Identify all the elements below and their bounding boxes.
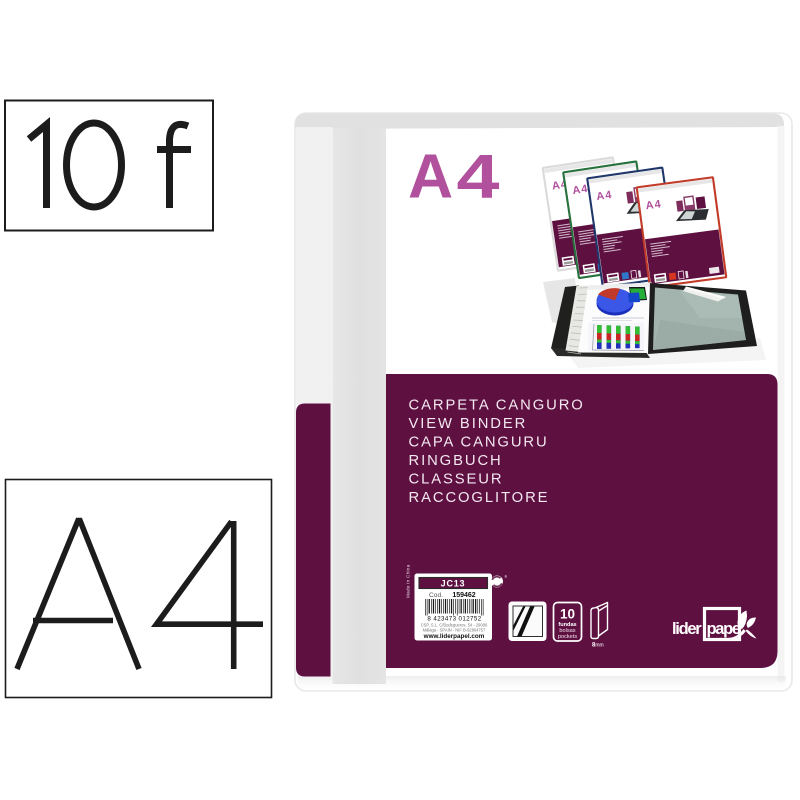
svg-text:®: ®	[505, 575, 508, 579]
svg-text:A4: A4	[596, 189, 614, 203]
svg-text:CAPA CANGURU: CAPA CANGURU	[409, 435, 549, 451]
svg-text:CARPETA CANGURO: CARPETA CANGURO	[409, 398, 585, 414]
svg-text:lider: lider	[672, 620, 702, 638]
svg-text:VIEW BINDER: VIEW BINDER	[409, 416, 528, 432]
svg-text:www.liderpapel.com: www.liderpapel.com	[423, 633, 485, 640]
svg-text:fundas: fundas	[558, 622, 576, 628]
svg-text:JC13: JC13	[441, 579, 466, 589]
svg-text:Made in China: Made in China	[406, 564, 411, 598]
svg-text:4: 4	[457, 142, 500, 212]
svg-text:pockets: pockets	[558, 634, 577, 640]
svg-text:10: 10	[560, 607, 575, 622]
svg-text:pape: pape	[707, 620, 741, 638]
svg-text:8mm: 8mm	[592, 643, 604, 649]
svg-text:A: A	[408, 142, 453, 212]
svg-text:159462: 159462	[452, 592, 475, 599]
svg-text:A4: A4	[572, 183, 590, 197]
svg-text:bolsas: bolsas	[559, 628, 575, 634]
svg-text:Cod.: Cod.	[429, 592, 443, 599]
svg-text:A4: A4	[645, 198, 663, 212]
svg-text:RACCOGLITORE: RACCOGLITORE	[409, 490, 550, 506]
svg-text:RINGBUCH: RINGBUCH	[409, 453, 503, 469]
svg-text:8 423473 012752: 8 423473 012752	[427, 616, 481, 623]
svg-text:CLASSEUR: CLASSEUR	[409, 472, 504, 488]
svg-text:Málaga - SPAIN - NIF B-9296475: Málaga - SPAIN - NIF B-92964757	[423, 627, 486, 632]
